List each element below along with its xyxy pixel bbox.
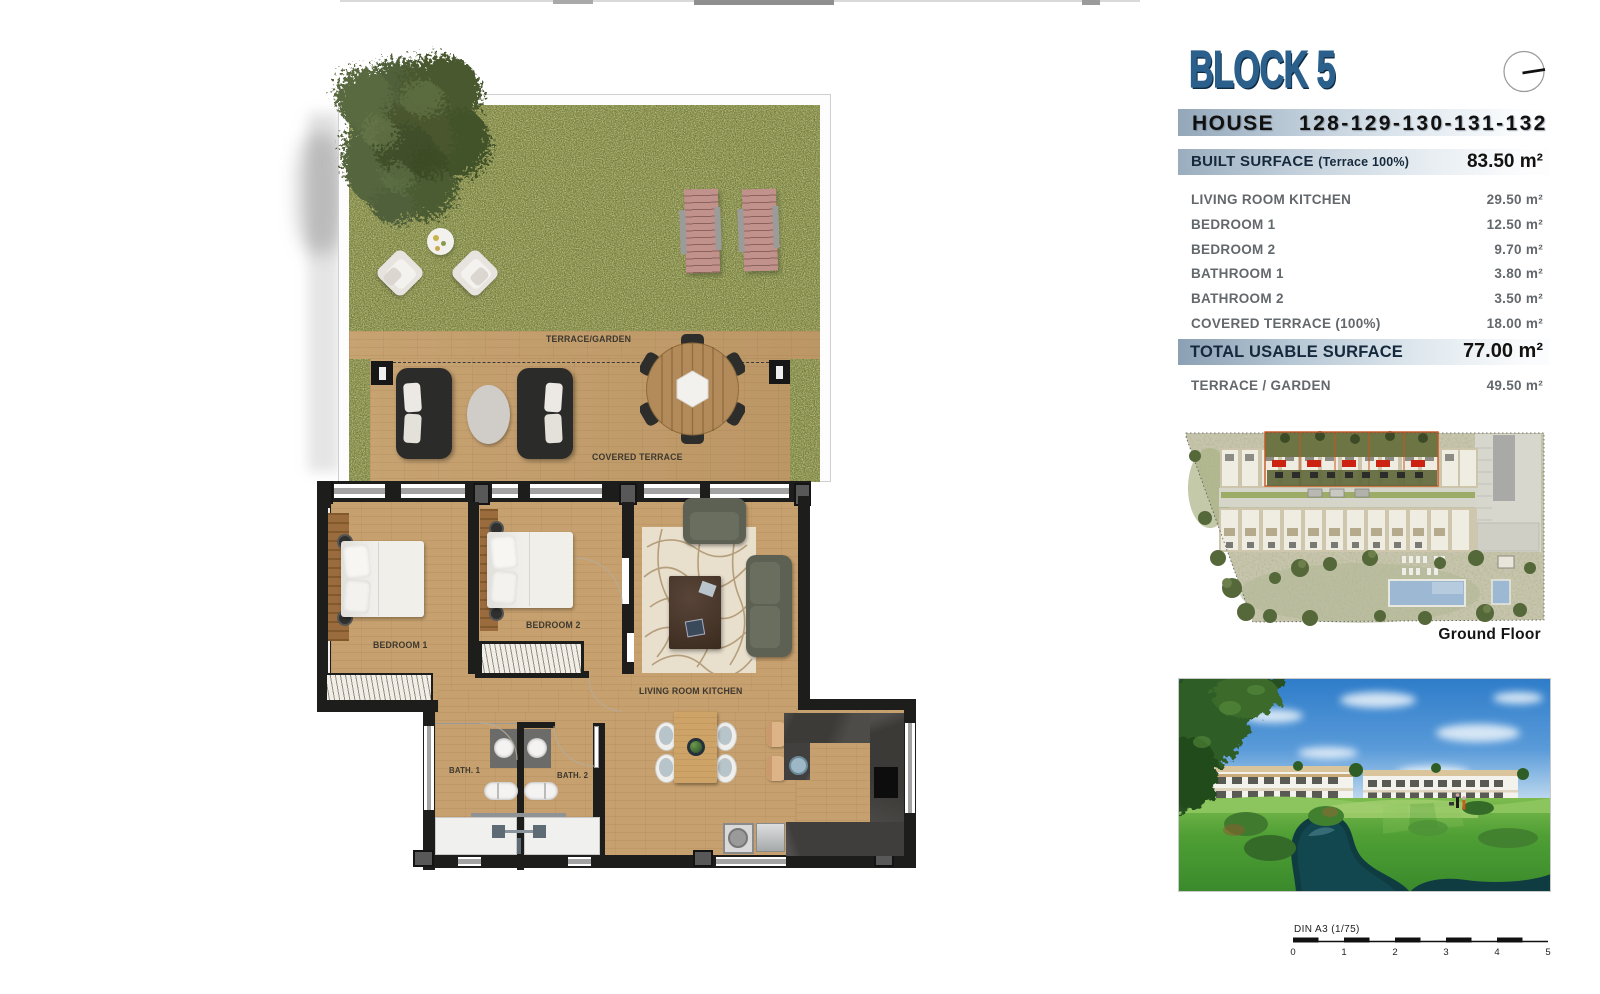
svg-text:3: 3 [1443,947,1448,958]
svg-text:4: 4 [1494,947,1499,958]
svg-text:2: 2 [1392,947,1397,958]
svg-text:5: 5 [1545,947,1550,958]
svg-text:0: 0 [1290,947,1295,958]
svg-text:1: 1 [1341,947,1346,958]
